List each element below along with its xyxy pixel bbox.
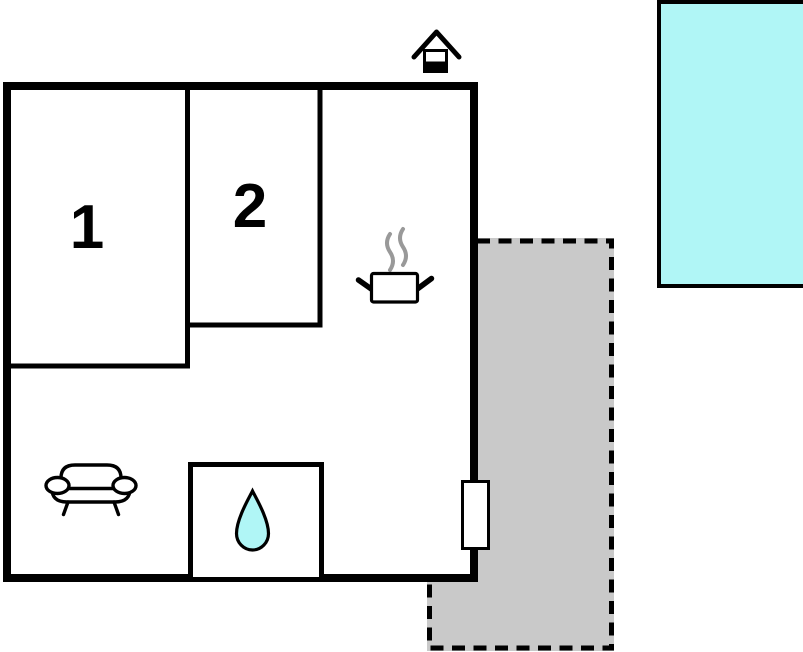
floor-plan-drawing: 1 2 (0, 0, 803, 652)
fireplace-base (423, 62, 448, 74)
pool (659, 2, 803, 286)
room-1-label: 1 (70, 193, 104, 262)
room-2-label: 2 (233, 172, 267, 241)
fireplace-icon (414, 32, 459, 73)
floor-plan-canvas: 1 2 (0, 0, 803, 652)
sofa-right-armrest (113, 478, 136, 494)
sofa-left-armrest (46, 478, 69, 494)
door (463, 482, 489, 549)
pot-body (372, 274, 418, 303)
